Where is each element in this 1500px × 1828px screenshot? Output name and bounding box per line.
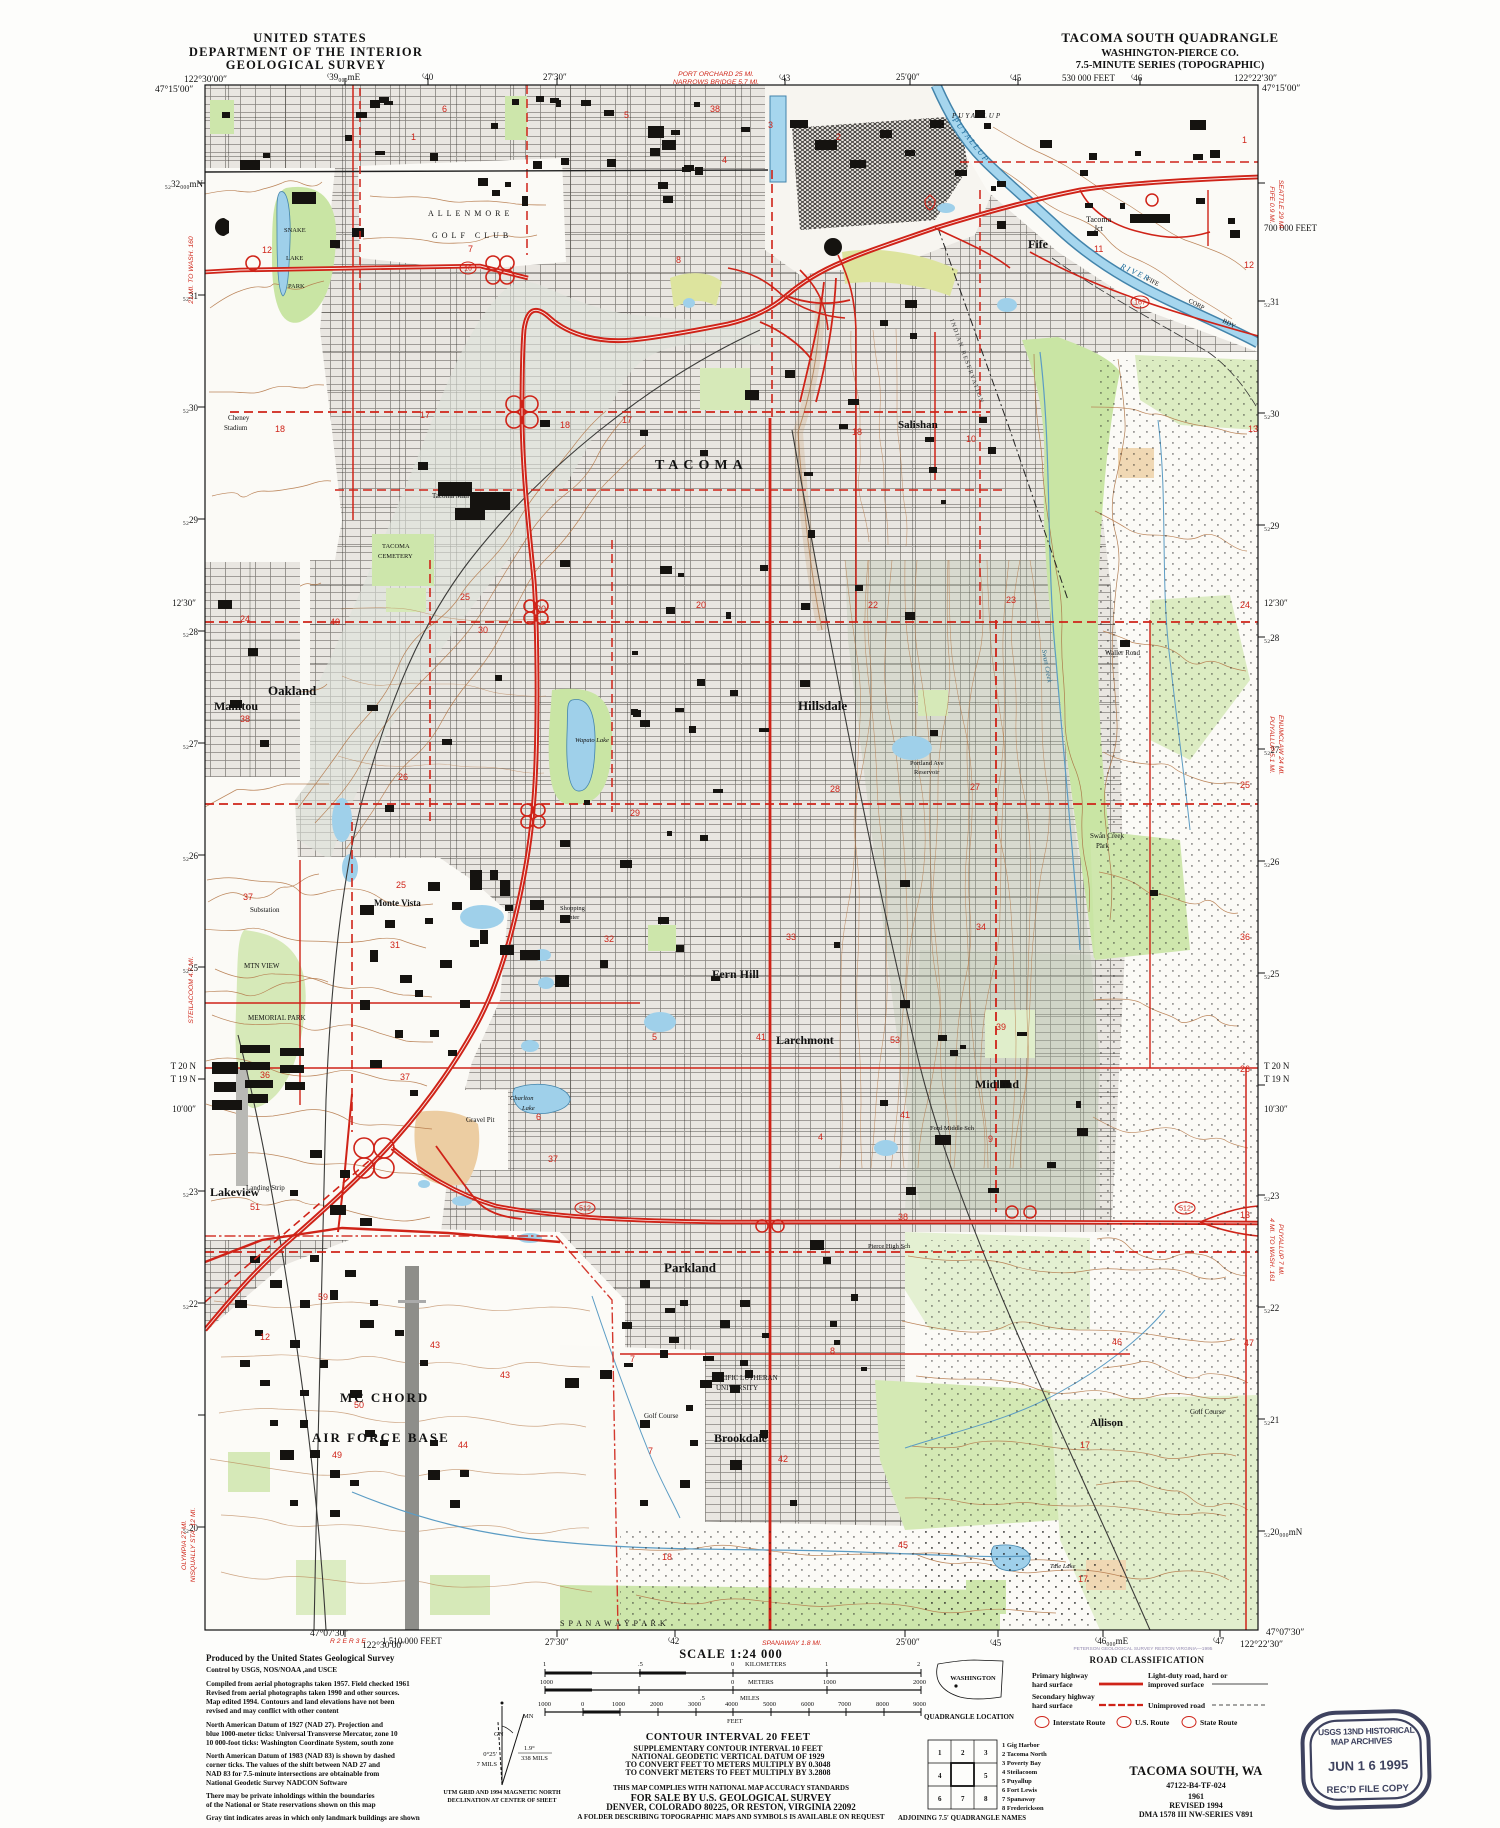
svg-text:ROAD CLASSIFICATION: ROAD CLASSIFICATION xyxy=(1089,1655,1204,1665)
svg-text:13: 13 xyxy=(1248,424,1258,434)
svg-text:Oakland: Oakland xyxy=(268,683,317,698)
svg-text:2: 2 xyxy=(836,132,841,142)
svg-text:₅₂31: ₅₂31 xyxy=(1264,297,1279,307)
svg-text:10: 10 xyxy=(966,434,976,444)
svg-text:Primary highway: Primary highway xyxy=(1032,1671,1088,1680)
svg-text:Midland: Midland xyxy=(975,1077,1019,1091)
svg-text:MAP ARCHIVES: MAP ARCHIVES xyxy=(1331,1735,1393,1747)
svg-text:Control by USGS, NOS/NOAA ,and: Control by USGS, NOS/NOAA ,and USCE xyxy=(206,1666,337,1674)
svg-text:49: 49 xyxy=(332,1450,342,1460)
svg-text:9: 9 xyxy=(988,1134,993,1144)
svg-text:512: 512 xyxy=(1179,1206,1191,1213)
svg-text:DECLINATION AT CENTER OF SHEET: DECLINATION AT CENTER OF SHEET xyxy=(447,1798,556,1804)
svg-text:FIFE 0.9 MI.: FIFE 0.9 MI. xyxy=(1268,186,1275,224)
svg-text:Golf Course: Golf Course xyxy=(644,1412,678,1420)
svg-text:NISQUALLY STA. 12 MI.: NISQUALLY STA. 12 MI. xyxy=(190,1508,197,1583)
svg-text:25: 25 xyxy=(1240,780,1250,790)
svg-text:hard surface: hard surface xyxy=(1032,1701,1073,1710)
svg-text:₅₂26: ₅₂26 xyxy=(1264,857,1280,867)
svg-text:⁽46: ⁽46 xyxy=(1131,73,1143,83)
svg-text:18: 18 xyxy=(560,420,570,430)
svg-text:10 000-foot ticks: Washington: 10 000-foot ticks: Washington Coordinate… xyxy=(206,1739,394,1747)
svg-text:T 20 N: T 20 N xyxy=(1264,1061,1290,1071)
svg-text:7: 7 xyxy=(961,1795,965,1803)
svg-text:Parkland: Parkland xyxy=(664,1260,717,1275)
svg-text:Pierce High Sch: Pierce High Sch xyxy=(868,1243,911,1250)
svg-text:CONTOUR INTERVAL 20 FEET: CONTOUR INTERVAL 20 FEET xyxy=(646,1732,810,1743)
svg-text:Fife: Fife xyxy=(1028,237,1049,251)
svg-text:47°15′00″: 47°15′00″ xyxy=(1262,83,1300,94)
svg-text:DENVER, COLORADO 80225, OR RES: DENVER, COLORADO 80225, OR RESTON, VIRGI… xyxy=(606,1802,856,1812)
svg-text:18: 18 xyxy=(275,424,285,434)
svg-text:STEILACOOM 4.7 MI.: STEILACOOM 4.7 MI. xyxy=(188,956,195,1023)
svg-text:METERS: METERS xyxy=(748,1679,774,1686)
svg-text:₅₂28: ₅₂28 xyxy=(1264,633,1280,643)
svg-text:17: 17 xyxy=(1080,1440,1090,1450)
svg-text:.5: .5 xyxy=(638,1661,643,1668)
svg-text:34: 34 xyxy=(976,922,986,932)
svg-text:17: 17 xyxy=(420,410,430,420)
svg-text:29: 29 xyxy=(630,808,640,818)
svg-text:⁽46₀₀₀mE: ⁽46₀₀₀mE xyxy=(1095,1636,1129,1646)
svg-text:18: 18 xyxy=(852,427,862,437)
svg-text:₅₂32₀₀₀mN: ₅₂32₀₀₀mN xyxy=(165,179,204,189)
svg-text:25: 25 xyxy=(460,592,470,602)
svg-text:SCALE 1:24 000: SCALE 1:24 000 xyxy=(679,1647,783,1661)
svg-text:₅₂21: ₅₂21 xyxy=(1264,1415,1279,1425)
svg-text:5: 5 xyxy=(928,201,932,208)
svg-text:WASHINGTON-PIERCE CO.: WASHINGTON-PIERCE CO. xyxy=(1101,48,1239,59)
svg-text:PUYALLUP 5.1 MI.: PUYALLUP 5.1 MI. xyxy=(1268,716,1275,774)
svg-text:25′00″: 25′00″ xyxy=(896,72,920,82)
svg-text:3: 3 xyxy=(768,120,773,130)
svg-text:Waller Road: Waller Road xyxy=(1105,649,1141,657)
svg-text:SNAKE: SNAKE xyxy=(284,227,306,234)
svg-text:₅₂29: ₅₂29 xyxy=(183,515,199,525)
svg-text:JUN 1 6 1995: JUN 1 6 1995 xyxy=(1328,1757,1409,1774)
svg-text:⁽45: ⁽45 xyxy=(990,1638,1002,1648)
svg-text:improved surface: improved surface xyxy=(1148,1680,1205,1689)
svg-text:47122-B4-TF-024: 47122-B4-TF-024 xyxy=(1166,1781,1226,1790)
svg-text:⁽45: ⁽45 xyxy=(1010,73,1022,83)
svg-text:THIS MAP COMPLIES WITH NATIONA: THIS MAP COMPLIES WITH NATIONAL MAP ACCU… xyxy=(613,1784,849,1792)
svg-text:9000: 9000 xyxy=(913,1701,926,1708)
svg-text:36: 36 xyxy=(1240,932,1250,942)
svg-text:Landing Strip: Landing Strip xyxy=(246,1184,285,1192)
svg-text:₅₂20₀₀₀mN: ₅₂20₀₀₀mN xyxy=(1264,1527,1303,1537)
svg-text:₅₂27: ₅₂27 xyxy=(183,739,199,749)
svg-text:45: 45 xyxy=(898,1540,908,1550)
svg-text:47: 47 xyxy=(1244,1338,1254,1348)
svg-text:25: 25 xyxy=(396,880,406,890)
svg-text:17: 17 xyxy=(622,415,632,425)
svg-text:Tacoma Mall: Tacoma Mall xyxy=(432,492,469,500)
svg-text:28: 28 xyxy=(830,784,840,794)
svg-text:R 2 E R 3 E: R 2 E R 3 E xyxy=(330,1638,366,1645)
svg-text:5: 5 xyxy=(624,110,629,120)
svg-text:DEPARTMENT OF THE INTERIOR: DEPARTMENT OF THE INTERIOR xyxy=(189,45,423,59)
svg-text:₅₂23: ₅₂23 xyxy=(183,1187,199,1197)
svg-text:SPANAWAY 1.8 MI.: SPANAWAY 1.8 MI. xyxy=(762,1640,822,1647)
svg-text:1: 1 xyxy=(411,132,416,142)
svg-text:5 Puyallup: 5 Puyallup xyxy=(1002,1778,1032,1785)
svg-text:27: 27 xyxy=(970,782,980,792)
svg-text:Gravel Pit: Gravel Pit xyxy=(466,1116,495,1124)
svg-text:122°30′00″: 122°30′00″ xyxy=(184,74,227,85)
svg-text:6: 6 xyxy=(442,104,447,114)
svg-text:MN: MN xyxy=(523,1713,534,1720)
svg-text:3 Poverty Bay: 3 Poverty Bay xyxy=(1002,1760,1042,1767)
svg-text:27′30″: 27′30″ xyxy=(545,1637,569,1647)
svg-text:700 000 FEET: 700 000 FEET xyxy=(1264,223,1318,233)
svg-text:GN: GN xyxy=(494,1731,504,1738)
svg-text:338 MILS: 338 MILS xyxy=(521,1755,548,1762)
svg-text:Monte Vista: Monte Vista xyxy=(374,898,421,908)
svg-text:QUADRANGLE LOCATION: QUADRANGLE LOCATION xyxy=(924,1713,1014,1721)
svg-text:₅₂25: ₅₂25 xyxy=(1264,969,1280,979)
svg-text:Revised from aerial photograph: Revised from aerial photographs taken 19… xyxy=(206,1689,400,1697)
svg-text:Portland Ave: Portland Ave xyxy=(910,760,944,767)
svg-text:Lake: Lake xyxy=(521,1105,535,1112)
svg-text:12: 12 xyxy=(1244,260,1254,270)
svg-text:Interstate Route: Interstate Route xyxy=(1053,1718,1106,1727)
svg-text:TACOMA SOUTH QUADRANGLE: TACOMA SOUTH QUADRANGLE xyxy=(1061,30,1278,45)
svg-text:8000: 8000 xyxy=(876,1701,889,1708)
svg-text:Allison: Allison xyxy=(1090,1417,1123,1429)
svg-text:₅₂22: ₅₂22 xyxy=(1264,1303,1279,1313)
svg-text:16: 16 xyxy=(464,266,472,273)
svg-text:1 510 000 FEET: 1 510 000 FEET xyxy=(382,1636,442,1646)
svg-text:revised and may conflict with: revised and may conflict with other cont… xyxy=(206,1707,339,1715)
svg-text:10′30″: 10′30″ xyxy=(1264,1104,1288,1114)
svg-text:43: 43 xyxy=(430,1340,440,1350)
svg-text:3: 3 xyxy=(984,1749,988,1757)
svg-text:KILOMETERS: KILOMETERS xyxy=(745,1661,787,1668)
svg-text:6000: 6000 xyxy=(801,1701,814,1708)
svg-text:21 MI. TO WASH. 160: 21 MI. TO WASH. 160 xyxy=(188,236,195,305)
svg-text:27′30″: 27′30″ xyxy=(543,72,567,82)
svg-text:REVISED 1994: REVISED 1994 xyxy=(1169,1801,1223,1810)
svg-text:MC CHORD: MC CHORD xyxy=(340,1390,429,1405)
svg-text:₅₂30: ₅₂30 xyxy=(1264,409,1280,419)
svg-text:7.5-MINUTE SERIES (TOPOGRAPHIC: 7.5-MINUTE SERIES (TOPOGRAPHIC) xyxy=(1076,60,1265,71)
svg-text:T 19 N: T 19 N xyxy=(171,1074,197,1084)
svg-text:PETERSON GEOLOGICAL SURVEY RES: PETERSON GEOLOGICAL SURVEY RESTON VIRGIN… xyxy=(1074,1646,1213,1652)
svg-text:Light-duty road, hard or: Light-duty road, hard or xyxy=(1148,1671,1228,1680)
svg-text:2000: 2000 xyxy=(913,1679,926,1686)
svg-text:1000: 1000 xyxy=(540,1679,553,1686)
svg-text:12′30″: 12′30″ xyxy=(1264,598,1288,608)
svg-text:4 MI. TO WASH. 161: 4 MI. TO WASH. 161 xyxy=(1268,1218,1275,1282)
svg-text:1961: 1961 xyxy=(1188,1792,1204,1801)
svg-text:Wapato Lake: Wapato Lake xyxy=(575,737,609,744)
svg-text:TACOMA: TACOMA xyxy=(655,458,748,473)
svg-text:30: 30 xyxy=(478,625,488,635)
svg-text:⁽42: ⁽42 xyxy=(668,1636,679,1646)
svg-text:24: 24 xyxy=(240,614,250,624)
svg-text:CEMETERY: CEMETERY xyxy=(378,553,413,560)
svg-text:12′30″: 12′30″ xyxy=(172,598,196,608)
svg-text:T 20 N: T 20 N xyxy=(171,1061,197,1071)
svg-text:4: 4 xyxy=(818,1132,823,1142)
svg-text:12: 12 xyxy=(262,245,272,255)
svg-text:1000: 1000 xyxy=(538,1701,551,1708)
svg-text:ADJOINING 7.5′ QUADRANGLE NAME: ADJOINING 7.5′ QUADRANGLE NAMES xyxy=(898,1815,1026,1822)
svg-text:1000: 1000 xyxy=(612,1701,625,1708)
svg-text:Tule Lake: Tule Lake xyxy=(1050,1563,1076,1570)
svg-text:OLYMPIA 27 MI.: OLYMPIA 27 MI. xyxy=(181,1520,188,1570)
svg-text:43: 43 xyxy=(500,1370,510,1380)
svg-text:5000: 5000 xyxy=(763,1701,776,1708)
svg-text:53: 53 xyxy=(890,1035,900,1045)
svg-text:0°25′: 0°25′ xyxy=(483,1751,497,1758)
svg-text:Swan Creek: Swan Creek xyxy=(1090,832,1125,840)
svg-text:2: 2 xyxy=(961,1749,965,1757)
svg-text:24: 24 xyxy=(1240,600,1250,610)
svg-text:23: 23 xyxy=(1006,595,1016,605)
svg-text:corner ticks. The values of th: corner ticks. The values of the shift be… xyxy=(206,1761,380,1769)
svg-text:40: 40 xyxy=(330,617,340,627)
svg-text:State Route: State Route xyxy=(1200,1718,1238,1727)
svg-text:22: 22 xyxy=(868,600,878,610)
svg-text:1: 1 xyxy=(938,1749,942,1757)
svg-text:AIR FORCE BASE: AIR FORCE BASE xyxy=(312,1430,450,1445)
svg-text:4000: 4000 xyxy=(725,1701,738,1708)
svg-text:530 000 FEET: 530 000 FEET xyxy=(1062,73,1116,83)
svg-text:7 Spanaway: 7 Spanaway xyxy=(1002,1796,1036,1803)
svg-text:PACIFIC LUTHERAN: PACIFIC LUTHERAN xyxy=(712,1374,778,1382)
svg-text:Unimproved road: Unimproved road xyxy=(1148,1701,1206,1710)
svg-text:6: 6 xyxy=(938,1795,942,1803)
svg-text:20: 20 xyxy=(536,604,546,614)
svg-text:17: 17 xyxy=(1078,1574,1088,1584)
svg-text:T 19 N: T 19 N xyxy=(1264,1074,1290,1084)
svg-text:S P A N A W A Y P A R K: S P A N A W A Y P A R K xyxy=(560,1619,667,1628)
svg-text:Park: Park xyxy=(1096,842,1109,850)
svg-text:DMA 1578 III NW-SERIES V891: DMA 1578 III NW-SERIES V891 xyxy=(1139,1810,1253,1819)
svg-text:⁽39₀₀₀mE: ⁽39₀₀₀mE xyxy=(327,72,361,82)
svg-text:4: 4 xyxy=(722,155,727,165)
svg-text:5: 5 xyxy=(984,1772,988,1780)
svg-text:Cheney: Cheney xyxy=(228,414,250,422)
svg-text:Manitou: Manitou xyxy=(214,699,258,713)
svg-text:Hillsdale: Hillsdale xyxy=(798,698,847,713)
svg-text:TO CONVERT METERS TO FEET MULT: TO CONVERT METERS TO FEET MULTIPLY BY 3.… xyxy=(626,1768,831,1777)
svg-text:18: 18 xyxy=(662,1552,672,1562)
svg-text:Stadium: Stadium xyxy=(224,424,248,432)
svg-text:10′00″: 10′00″ xyxy=(172,1104,196,1114)
svg-text:8: 8 xyxy=(984,1795,988,1803)
svg-text:1: 1 xyxy=(1242,135,1247,145)
svg-text:13: 13 xyxy=(1240,1210,1250,1220)
svg-text:7: 7 xyxy=(468,244,473,254)
svg-text:North American Datum of 1927 (: North American Datum of 1927 (NAD 27). P… xyxy=(206,1721,383,1729)
svg-text:41: 41 xyxy=(756,1032,766,1042)
svg-text:46: 46 xyxy=(1112,1337,1122,1347)
svg-text:33: 33 xyxy=(786,932,796,942)
svg-text:Secondary highway: Secondary highway xyxy=(1032,1692,1095,1701)
svg-text:Reservoir: Reservoir xyxy=(914,769,940,776)
svg-text:4 Steilacoom: 4 Steilacoom xyxy=(1002,1769,1038,1776)
svg-text:7: 7 xyxy=(630,1354,635,1364)
svg-text:UNITED STATES: UNITED STATES xyxy=(253,31,366,45)
svg-text:37: 37 xyxy=(548,1154,558,1164)
svg-text:32: 32 xyxy=(604,934,614,944)
svg-text:59: 59 xyxy=(318,1292,328,1302)
svg-text:UNIVERSITY: UNIVERSITY xyxy=(716,1384,758,1392)
svg-text:Brookdale: Brookdale xyxy=(714,1431,768,1445)
svg-text:UTM GRID AND 1994 MAGNETIC NOR: UTM GRID AND 1994 MAGNETIC NORTH xyxy=(443,1790,561,1796)
svg-text:26: 26 xyxy=(1240,1064,1250,1074)
svg-text:11: 11 xyxy=(1094,244,1103,254)
svg-text:12: 12 xyxy=(260,1332,270,1342)
svg-text:7000: 7000 xyxy=(838,1701,851,1708)
svg-text:ENUMCLAW 24 MI.: ENUMCLAW 24 MI. xyxy=(1277,715,1284,775)
svg-text:1.9°: 1.9° xyxy=(524,1745,535,1752)
svg-text:₅₂22: ₅₂22 xyxy=(183,1299,198,1309)
svg-text:512: 512 xyxy=(579,1206,591,1213)
svg-text:1 Gig Harbor: 1 Gig Harbor xyxy=(1002,1742,1040,1749)
svg-text:hard surface: hard surface xyxy=(1032,1680,1073,1689)
svg-text:₅₂28: ₅₂28 xyxy=(183,627,199,637)
svg-text:37: 37 xyxy=(400,1072,410,1082)
svg-text:MTN VIEW: MTN VIEW xyxy=(244,962,280,970)
svg-text:1: 1 xyxy=(825,1661,828,1668)
svg-text:37: 37 xyxy=(243,892,253,902)
svg-text:31: 31 xyxy=(390,940,400,950)
svg-text:Gray tint indicates areas in w: Gray tint indicates areas in which only … xyxy=(206,1814,420,1822)
svg-text:A FOLDER DESCRIBING TOPOGRAPHI: A FOLDER DESCRIBING TOPOGRAPHIC MAPS AND… xyxy=(577,1813,884,1821)
svg-text:MEMORIAL PARK: MEMORIAL PARK xyxy=(248,1014,306,1022)
svg-text:PARK: PARK xyxy=(288,283,305,290)
svg-text:2000: 2000 xyxy=(650,1701,663,1708)
svg-text:Produced by the United States: Produced by the United States Geological… xyxy=(206,1653,395,1663)
svg-text:PORT ORCHARD 25 MI.: PORT ORCHARD 25 MI. xyxy=(678,71,754,78)
svg-text:of the National or State reser: of the National or State reservations sh… xyxy=(206,1801,376,1809)
svg-text:TACOMA SOUTH, WA: TACOMA SOUTH, WA xyxy=(1129,1764,1262,1778)
svg-text:7 MILS: 7 MILS xyxy=(477,1761,498,1768)
svg-text:47°07′30″: 47°07′30″ xyxy=(1266,1627,1304,1638)
svg-text:Salishan: Salishan xyxy=(898,419,938,431)
svg-text:3000: 3000 xyxy=(688,1701,701,1708)
svg-text:4: 4 xyxy=(938,1772,942,1780)
svg-text:42: 42 xyxy=(778,1454,788,1464)
svg-text:122°22′30″: 122°22′30″ xyxy=(1240,1639,1283,1650)
svg-text:Substation: Substation xyxy=(250,906,280,914)
svg-text:ALLENMORE: ALLENMORE xyxy=(428,209,513,218)
svg-text:North American Datum of 1983 (: North American Datum of 1983 (NAD 83) is… xyxy=(206,1752,395,1760)
svg-text:122°22′30″: 122°22′30″ xyxy=(1234,73,1277,84)
svg-text:Center: Center xyxy=(562,914,580,921)
svg-text:Larchmont: Larchmont xyxy=(776,1033,834,1047)
svg-text:blue 1000-meter ticks: Univers: blue 1000-meter ticks: Universal Transve… xyxy=(206,1730,398,1738)
svg-text:There may be private inholding: There may be private inholdings within t… xyxy=(206,1792,375,1800)
svg-text:Charlton: Charlton xyxy=(510,1095,533,1102)
svg-text:38: 38 xyxy=(710,104,720,114)
svg-text:Map edited 1994. Contours and: Map edited 1994. Contours and land eleva… xyxy=(206,1698,395,1706)
svg-text:National Geodetic Survey NADCO: National Geodetic Survey NADCON Software xyxy=(206,1779,347,1787)
svg-text:8: 8 xyxy=(830,1346,835,1356)
svg-text:51: 51 xyxy=(250,1202,260,1212)
svg-text:U.S. Route: U.S. Route xyxy=(1135,1718,1170,1727)
svg-text:38: 38 xyxy=(240,714,250,724)
svg-text:6 Fort Lewis: 6 Fort Lewis xyxy=(1002,1787,1037,1794)
svg-text:FEET: FEET xyxy=(727,1718,743,1725)
svg-text:Shopping: Shopping xyxy=(560,905,586,912)
svg-text:5: 5 xyxy=(652,1032,657,1042)
svg-text:41: 41 xyxy=(900,1110,910,1120)
svg-text:8: 8 xyxy=(676,255,681,265)
svg-text:8 Frederickson: 8 Frederickson xyxy=(1002,1805,1044,1812)
svg-text:Ford Middle Sch: Ford Middle Sch xyxy=(930,1125,975,1132)
svg-text:6: 6 xyxy=(536,1112,541,1122)
svg-text:1: 1 xyxy=(543,1661,546,1668)
svg-text:PUYALLUP 7 MI.: PUYALLUP 7 MI. xyxy=(1277,1224,1284,1276)
svg-text:2 Tacoma North: 2 Tacoma North xyxy=(1002,1751,1047,1758)
svg-text:20: 20 xyxy=(696,600,706,610)
svg-text:25′00″: 25′00″ xyxy=(896,1637,920,1647)
svg-text:Compiled from aerial photograp: Compiled from aerial photographs taken 1… xyxy=(206,1680,410,1688)
svg-text:Tacoma: Tacoma xyxy=(1086,215,1112,224)
svg-text:₅₂30: ₅₂30 xyxy=(183,403,199,413)
svg-text:NAD 83 for 7.5-minute intersec: NAD 83 for 7.5-minute intersections are … xyxy=(206,1770,379,1778)
svg-text:47°15′00″: 47°15′00″ xyxy=(155,84,193,95)
svg-text:2: 2 xyxy=(917,1661,920,1668)
svg-text:39: 39 xyxy=(996,1022,1006,1032)
svg-text:44: 44 xyxy=(458,1440,468,1450)
svg-text:GOLF CLUB: GOLF CLUB xyxy=(432,231,512,240)
svg-text:₅₂26: ₅₂26 xyxy=(183,851,199,861)
svg-text:Golf Course: Golf Course xyxy=(1190,1408,1224,1416)
svg-text:0: 0 xyxy=(731,1679,734,1686)
svg-text:₅₂29: ₅₂29 xyxy=(1264,521,1280,531)
svg-text:⁽47: ⁽47 xyxy=(1213,1636,1225,1646)
svg-text:WASHINGTON: WASHINGTON xyxy=(950,1675,996,1682)
svg-text:SEATTLE 29 MI.: SEATTLE 29 MI. xyxy=(1277,180,1284,231)
svg-text:LAKE: LAKE xyxy=(286,255,303,262)
svg-text:REC’D FILE COPY: REC’D FILE COPY xyxy=(1326,1783,1409,1796)
svg-text:MILES: MILES xyxy=(740,1695,760,1702)
svg-text:38: 38 xyxy=(898,1212,908,1222)
svg-text:TACOMA: TACOMA xyxy=(382,543,410,550)
svg-text:26: 26 xyxy=(398,772,408,782)
svg-text:0: 0 xyxy=(581,1701,584,1708)
svg-text:₅₂23: ₅₂23 xyxy=(1264,1191,1280,1201)
svg-text:GEOLOGICAL SURVEY: GEOLOGICAL SURVEY xyxy=(226,58,387,72)
svg-text:7: 7 xyxy=(648,1446,653,1456)
svg-text:1000: 1000 xyxy=(823,1679,836,1686)
svg-text:36: 36 xyxy=(260,1070,270,1080)
svg-text:0: 0 xyxy=(731,1661,734,1668)
